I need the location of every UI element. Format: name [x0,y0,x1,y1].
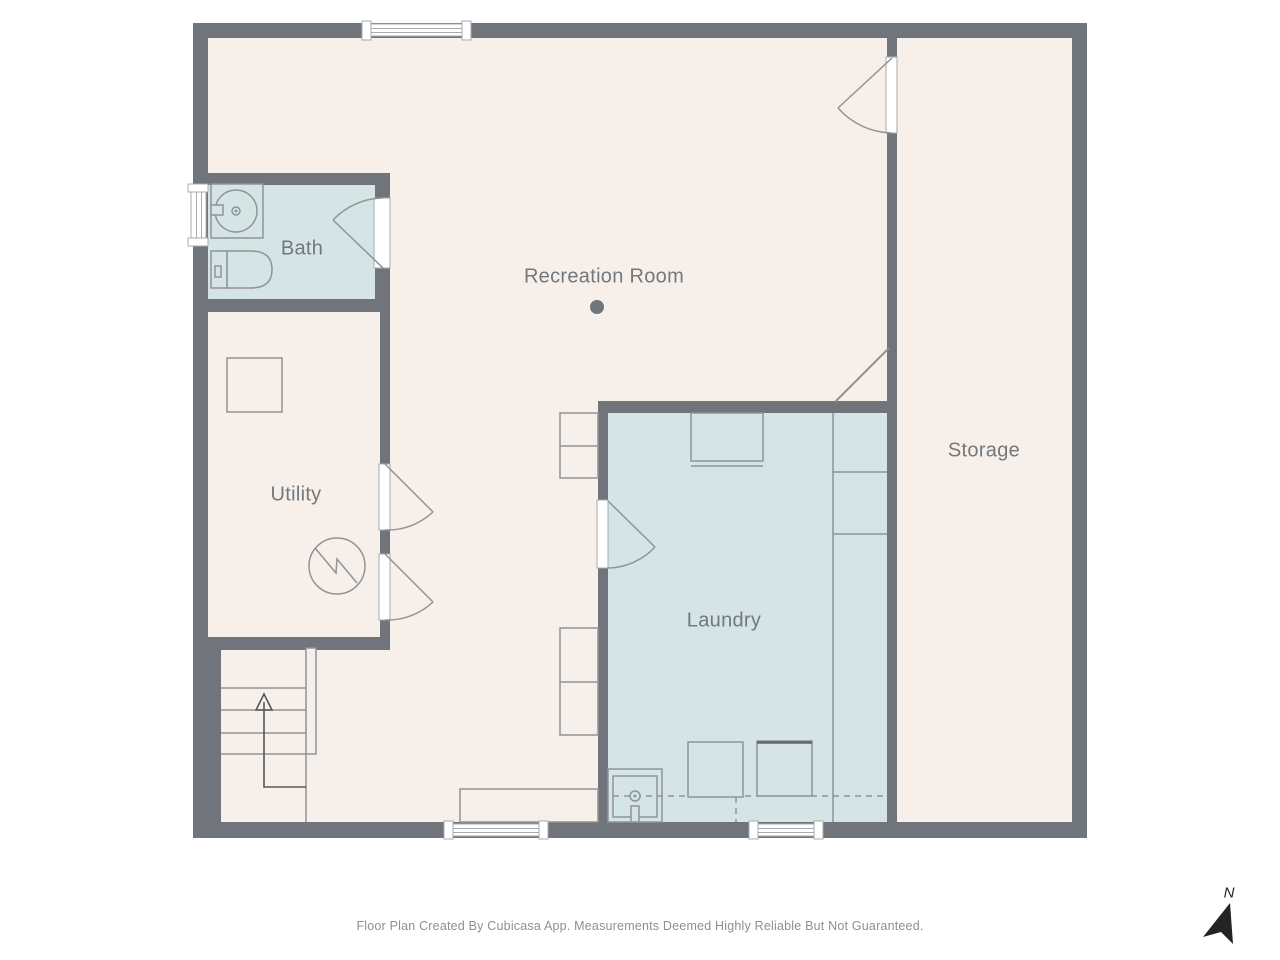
floor-plan-page: Bath Utility Recreation Room Laundry Sto… [0,0,1280,960]
footer-disclaimer: Floor Plan Created By Cubicasa App. Meas… [0,919,1280,933]
washer-icon [688,742,743,797]
wall-storage [887,38,897,822]
laundry-sink-faucet [631,806,639,822]
toilet-icon [227,251,272,288]
wall-bath-top [205,173,390,185]
dryer-icon [757,741,812,796]
window-bottom-laundry [749,821,823,839]
window-bath-left [188,184,208,246]
water-heater-icon [227,358,282,412]
wall-laundry-left [598,413,608,822]
wall-laundry-top [598,401,897,413]
wall-outer-top [193,23,1087,38]
counter-bottom [460,789,598,822]
room-label-storage: Storage [948,440,1020,463]
bath-fixtures [211,184,272,288]
laundry-door-leaf [597,500,608,568]
wall-outer-bottom [193,822,1087,838]
stair-rail [306,648,316,754]
wall-outer-left-stairs [193,648,221,822]
laundry-sink-drain-dot [634,795,637,798]
bathroom-sink-faucet [211,205,223,215]
north-label: N [1224,885,1235,902]
wall-utility-bottom [193,637,390,650]
utility-door-upper-leaf [379,464,390,530]
wall-outer-right [1072,23,1087,838]
floor-plan-drawing [0,0,1280,960]
room-label-laundry: Laundry [687,610,761,633]
toilet-flush-button [215,266,221,277]
camera-point-icon [590,300,604,314]
utility-door-lower-leaf [379,554,390,620]
laundry-counter [691,413,763,461]
bath-door-leaf [374,198,390,268]
window-bottom-left [444,821,548,839]
room-label-utility: Utility [271,484,322,507]
storage-door-leaf [886,57,897,133]
wall-bath-bottom [205,299,390,312]
room-label-recreation: Recreation Room [524,266,684,289]
room-label-bath: Bath [281,238,323,261]
bathroom-sink-drain-dot [235,210,238,213]
